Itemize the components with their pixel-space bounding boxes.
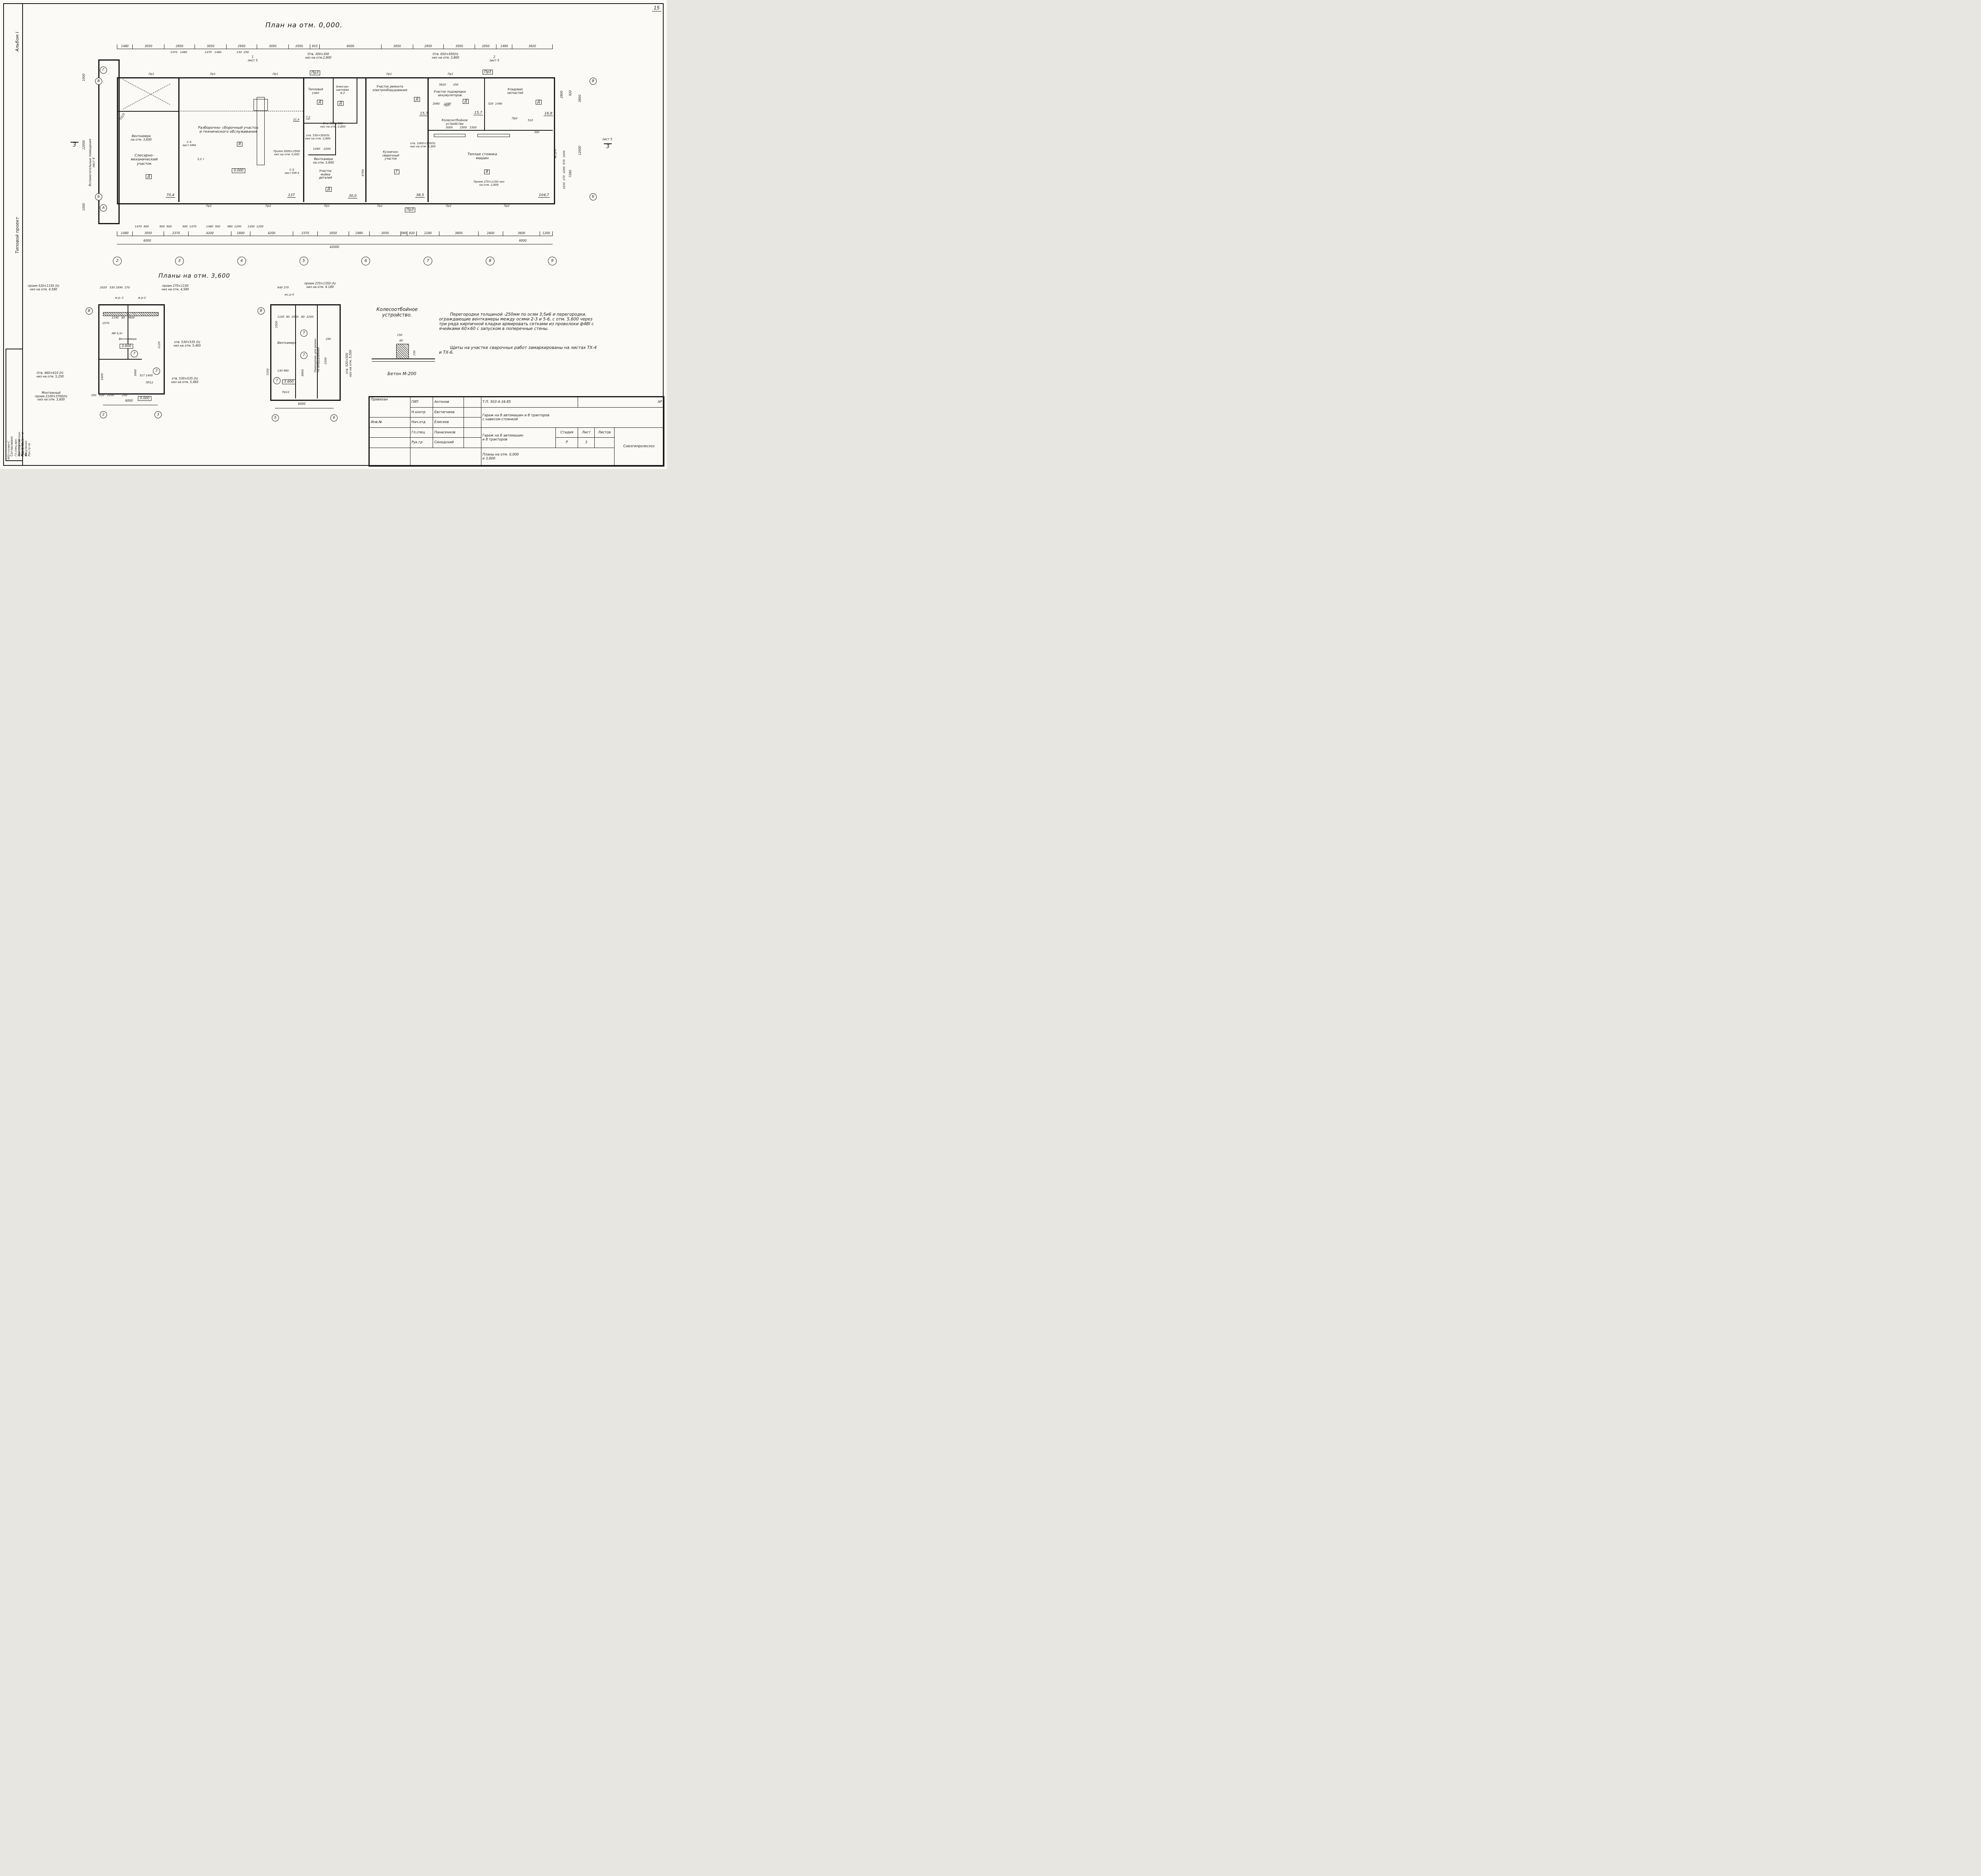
dim-value: 3800: [439, 231, 478, 236]
dim-value: 1200: [540, 231, 553, 236]
dim-value: 2050: [288, 44, 310, 49]
tb-role-2: Нач.отд: [410, 418, 433, 428]
p1-d6: 250 520 2100 250: [91, 394, 127, 397]
tb-name-1: Евстигнеев: [433, 407, 464, 418]
tb-empty-1: [370, 427, 410, 438]
tb-sig-0: [464, 397, 481, 408]
dim-total-right: 6000: [519, 239, 527, 243]
annex-outline: [98, 59, 120, 224]
dim-value: 920: [407, 231, 417, 236]
room-stoyanka-letter: В: [484, 170, 490, 174]
p2-elev: 3.600: [282, 379, 296, 384]
p1-pr12: ПР12: [146, 381, 153, 384]
dim-value: 4200: [188, 231, 231, 236]
p1-axis-left: В: [86, 307, 93, 315]
p2-axis2: 6: [330, 414, 338, 421]
mark-prii: ПрII: [512, 117, 517, 120]
tb-sheet: 3: [578, 438, 595, 448]
section-mark-1: 1 лист 5: [248, 55, 258, 62]
dim-value: 3600: [503, 231, 540, 236]
room-podzar-dims: 5620 250: [439, 83, 458, 86]
dim-value: 1480: [117, 44, 132, 49]
dim-right-3: 920: [569, 90, 573, 96]
tb-role-4: Рук.гр: [410, 438, 433, 448]
dim-bottom-pairs: 1470 900 900 900 900 1470 1480 500 980 1…: [135, 225, 263, 228]
mark-pr2-b: Пр2: [265, 204, 271, 208]
room-podzar: Участок подзарядки аккумуляторов: [434, 90, 466, 97]
partition-axis3: [178, 77, 179, 202]
detail-caption: Бетон М-200: [387, 372, 416, 377]
tb-title2: Гараж на 8 автомашин и 8 тракторов: [481, 427, 555, 448]
dim-value: 580: [401, 231, 407, 236]
room-moyka-area: 30,0: [348, 194, 357, 198]
dim-value: 2370: [293, 231, 317, 236]
room-kuzn-letter: Г: [394, 170, 399, 174]
dim-value: 2370: [164, 231, 188, 236]
tb-sig-2: [464, 418, 481, 428]
dim-value: 1490: [496, 44, 511, 49]
ann-proem270: Проем 270×1150 низ на отм. 2,600: [473, 180, 504, 187]
tb-name-0: Антонов: [433, 397, 464, 408]
dim-value: 2950: [226, 44, 257, 49]
room-kuzn-dim: 6700: [361, 169, 365, 176]
detail-d3: 150: [413, 351, 416, 356]
p2-d4: 6900: [301, 369, 304, 376]
dim-total: 42000: [330, 246, 339, 249]
room-razbor: Разборочно- сборочный участок и техничес…: [198, 126, 258, 134]
axis-left-V: В: [95, 78, 102, 85]
ann-otv530: отв. 530×500(h) низ на отм. 2,800: [305, 134, 330, 140]
mark-pr2-a: Пр2: [206, 204, 212, 208]
dim-right-1: 2800: [560, 91, 564, 98]
mark-prn: ПрН: [444, 104, 450, 107]
c5-km4b: С-5 лист КМ-4: [284, 168, 299, 175]
p2-ann-top: проем 270×1350 (h) низ на отм. 4.180: [304, 282, 336, 289]
agree-row-3: Рук.гр.техн. Вакуленко Рук.гр св: [21, 439, 31, 457]
p2-d3: 7250: [266, 368, 269, 376]
p1-axis9: 7: [131, 350, 138, 357]
tb-empty-4: [410, 448, 481, 465]
dim-value: 2050: [475, 44, 496, 49]
p2-d5: 2590: [324, 357, 327, 364]
dim-right-mid: 12000: [578, 146, 582, 155]
axis-bubble: 5: [300, 257, 308, 265]
p2-m1: жс.р-3: [284, 293, 294, 296]
dim-right-2: 3800: [578, 95, 582, 102]
dim-row-bottom: 1480305023704200180042002370305019803050…: [117, 231, 553, 236]
album-label: Альбом I: [15, 32, 20, 51]
dim-row-top: 1480305029503050295030502050910600030502…: [117, 44, 553, 49]
room-kuzn-area: 38,5: [415, 193, 425, 198]
room-klad-area: 16,8: [544, 112, 553, 116]
p1-partition: [128, 304, 128, 360]
p1-d4: 3060: [134, 369, 137, 376]
p2-dimline: [275, 408, 334, 408]
dim-value: 2950: [164, 44, 195, 49]
axis-bubble: 3: [175, 257, 184, 265]
p2-total: 6000: [298, 402, 305, 406]
p1-d7: 317 1400: [139, 374, 153, 377]
p1-ann-l2: Монтажный проем 2100×3700(h) низ на отм.…: [35, 391, 67, 402]
room-vent2: Венткамера на отм. 3,600: [313, 158, 334, 164]
dim-value: 2180: [416, 231, 439, 236]
partition-teplo-electro: [333, 77, 334, 123]
tb-sheets: [595, 438, 615, 448]
room-moyka: Участок мойки деталей: [319, 170, 332, 180]
dim-value: 910: [310, 44, 319, 49]
p1-dimline: [103, 405, 158, 405]
room-razbor-area: 137: [287, 193, 296, 198]
tb-sig-1: [464, 407, 481, 418]
main-plan-title: План на отм. 0,000.: [265, 22, 343, 30]
dim-left-bot: 1000: [82, 203, 86, 211]
partition-vent2: [308, 154, 336, 155]
p1-partition2: [98, 359, 142, 360]
mark-pr5: Пр5: [483, 70, 493, 74]
partition-axis6: [365, 77, 366, 202]
axis-left-G: Г: [100, 67, 107, 74]
title-block: Привязан ГИП Антонов Т.П. 503-4-34.85 АР…: [368, 396, 664, 467]
p1-elev0: 0.000: [138, 396, 151, 401]
p2-pr12: Пр12: [282, 391, 290, 394]
room-remont-letter: Д: [414, 97, 420, 102]
tb-name-4: Синодский: [433, 438, 464, 448]
room-vent1: Венткамера на отм. 3,600: [131, 135, 152, 141]
mark-pr1-a: Пр1: [149, 72, 154, 76]
p1-ann-r2: отв. 530×535 (h) низ на отм. 5,465: [171, 377, 198, 384]
room-podzar-area: 15,7: [473, 111, 483, 115]
annex-label: Вспомогательные помещения лист 4: [89, 139, 95, 186]
tb-stage: Р: [556, 438, 578, 448]
ann-proem3000: Проем 3000×2500 низ на отм. 0,000: [273, 150, 300, 156]
dim-value: 3050: [381, 44, 413, 49]
section-right-txt: лист 5: [602, 138, 612, 141]
room-stoyanka-area: 104,7: [538, 193, 550, 198]
axis-right-B: Б: [590, 193, 597, 200]
crane-capacity: 3,2 т: [197, 158, 204, 161]
tb-sheet-label: Лист: [578, 427, 595, 438]
axis-bubble: 9: [548, 257, 557, 265]
axis-right-V: В: [590, 78, 597, 85]
p2-axis9a: 7: [300, 330, 307, 337]
p2-room2: Помещение для ремон- та оборудования: [314, 338, 320, 372]
dim-value: 3050: [132, 44, 164, 49]
partition-axis7: [427, 77, 429, 202]
room-kuzn: Кузнечно- сварочный участок: [382, 151, 399, 161]
dim-left-mid: 12000: [82, 140, 86, 150]
p2-axis7: 7: [273, 377, 281, 384]
room-slesar-area: 70,4: [166, 193, 175, 198]
p1-m1: ж.р.-1: [115, 296, 124, 299]
dim-total-line: [117, 244, 553, 244]
room-slesar-letter: Д: [146, 174, 152, 179]
ann-otv500: Отв. 500×500 низ на отм. 2,800: [320, 122, 345, 128]
room-moyka-letter: Д: [326, 187, 332, 192]
room-klad-dims: 520 1490: [488, 102, 502, 105]
agree-label: Согласовано: [10, 437, 14, 456]
axis-bubble: 4: [237, 257, 246, 265]
dim-value: 3920: [512, 44, 553, 49]
room-teplo-letter: Д: [317, 100, 323, 105]
tb-empty-2: [370, 438, 410, 448]
axis-left-A: А: [100, 204, 107, 212]
tb-role-1: Н.контр: [410, 407, 433, 418]
drawing-sheet: 15 Альбом I Типовой проект 602-гссово-С …: [0, 0, 667, 469]
p2-d6: 130 960: [277, 369, 289, 372]
p1-ann-r1: отв. 530×535 (h) низ на отм. 5,465: [174, 341, 201, 347]
p2-axis1: 5: [272, 414, 279, 421]
notes-p2: Щиты на участке сварочных работ замаркир…: [439, 345, 597, 355]
sheet-number: 15: [652, 6, 661, 11]
p2-d1: 2500: [275, 321, 278, 328]
dim-510: 510: [528, 119, 533, 122]
tb-role-0: ГИП: [410, 397, 433, 408]
room-remont-area: 15,7: [419, 112, 429, 116]
wheel-stop-label: Колесоотбойное устройство: [442, 119, 468, 126]
section-mark-2: 2 лист 5: [489, 55, 499, 62]
dim-value: 3050: [317, 231, 349, 236]
wheel-stop-bar-1: [434, 134, 466, 137]
p1-ann-l1: Отв. 660×610 (h) низ на отм. 5,250: [36, 372, 64, 378]
stoyanka-dims: 3000 2500 1500: [446, 126, 477, 129]
room-klad-letter: Д: [536, 100, 542, 105]
dim-value: 3050: [132, 231, 164, 236]
axis-bubble: 7: [424, 257, 432, 265]
room-electro-area: 21,4: [293, 118, 300, 122]
c5-km4: С-5 лист КМ4: [182, 141, 196, 147]
p1-d3: 5400: [101, 373, 104, 380]
mark-pr1-b: Пр1: [210, 72, 216, 76]
pit-head: [254, 99, 268, 111]
p2-d2: 1100 80 2540 80 2200: [277, 315, 313, 318]
mark-pr1-d: Пр1: [386, 72, 392, 76]
dim-value: 6000: [319, 44, 381, 49]
ann-otv1000: отв. 1000×500(h) низ на отм. 3,300: [410, 142, 435, 148]
project-type-label: Типовой проект: [15, 217, 20, 254]
notes-p1: Перегородки толщиной -250мм по осям 3;5и…: [439, 312, 597, 331]
section-right: 3: [604, 143, 612, 150]
dim-value: 2950: [413, 44, 443, 49]
room-klad: Кладовая запчастей: [507, 88, 523, 95]
agree-table: Согласовано Гл.спец.арх. Екатеринов Рук.…: [6, 349, 23, 461]
mark-pr1-c: Пр1: [273, 72, 278, 76]
p1-d2: 1190 80 2600: [112, 316, 135, 319]
room-electro-letter: Д: [338, 101, 344, 106]
mark-pr2-c: Пр2: [446, 204, 451, 208]
tb-mark: АР: [578, 397, 664, 408]
detail-block: [396, 344, 409, 359]
section-left: 3: [71, 142, 78, 149]
detail-base2: [372, 361, 435, 362]
dim-top-sub: 1470 1480 1470 1480 130 250: [170, 51, 249, 54]
p1-dims-top: 2020 530 1690 270: [100, 286, 130, 289]
p2-room: Венткамера: [277, 341, 296, 345]
axis-bubble: 2: [113, 257, 122, 265]
p1-ann-topleft: проем 530×1150 (h) низ на отм. 4,580: [28, 284, 59, 291]
dim-total-left: 6000: [143, 239, 151, 243]
tb-sig-4: [464, 438, 481, 448]
dim-value: 1980: [349, 231, 369, 236]
mark-pr1-e: Пр1: [448, 72, 453, 76]
detail-title: Колесоотбойное устройство.: [376, 307, 418, 318]
partition-axis5: [303, 77, 304, 202]
tb-attach: Привязан: [370, 397, 410, 418]
dim-value: 1480: [117, 231, 132, 236]
dim-value: 4200: [250, 231, 293, 236]
tb-doc: Т.П. 503-4-34.85: [481, 397, 578, 408]
room-podzar-letter: Д: [463, 99, 469, 104]
dim-value: 3050: [369, 231, 401, 236]
detail-d2: 80: [399, 339, 403, 342]
p1-d1: 1570: [102, 322, 109, 325]
dim-value: 3050: [195, 44, 226, 49]
mark-pr1-f: Пр1: [324, 204, 330, 208]
tb-role-3: Гл.спец: [410, 427, 433, 438]
ann-otv650: Отв. 650×450(h) низ на отм. 3,800: [432, 53, 459, 59]
elev-0000: 0.000: [232, 168, 245, 173]
p1-elev: 3.600: [120, 344, 133, 349]
mark-zhr2: жс.р-2: [554, 149, 557, 158]
p1-hatch-wall: [103, 312, 158, 316]
dim-value: 3050: [257, 44, 288, 49]
tb-sig-3: [464, 427, 481, 438]
p1-axis2: 3: [155, 411, 162, 418]
p1-axis7: 7: [153, 368, 160, 375]
p2-dims-top: 640 270: [277, 286, 289, 289]
dim-value: 2400: [478, 231, 503, 236]
dim-left-top: 1000: [82, 74, 86, 81]
tb-name-2: Елисеев: [433, 418, 464, 428]
p1-m2: ж.р-2: [138, 296, 146, 299]
wheel-stop-bar-2: [477, 134, 510, 137]
dim-value: 1800: [231, 231, 250, 236]
tb-sheets-label: Листов: [595, 427, 615, 438]
dim-390: 390: [534, 131, 539, 134]
p1-room: Венткамера: [119, 337, 137, 341]
dim-right-inner: 1630 270 2200 970 1630: [563, 151, 566, 189]
p2-axis-left: В: [258, 307, 265, 315]
plans36-title: Планы на отм. 3,600: [158, 273, 230, 279]
crane-rail-dashed: [119, 111, 303, 111]
mark-pr1-g: Пр1: [377, 204, 383, 208]
room-razbor-letter: В: [237, 142, 242, 147]
room-slesar: Слесарно- механический участок: [131, 154, 158, 166]
axis-left-B: Б: [95, 193, 102, 200]
room-vent2-dims: 1490 2200: [313, 147, 331, 151]
tb-stage-label: Стадия: [556, 427, 578, 438]
mark-pr3-bot: Пр3: [405, 208, 415, 212]
p1-mr: МР 0,5т: [112, 332, 123, 335]
axis-bubble: 6: [361, 257, 370, 265]
dim-value: 3050: [443, 44, 475, 49]
tb-empty-3: [370, 448, 410, 465]
p2-axis9b: 7: [300, 352, 307, 359]
p1-axis1: 2: [100, 411, 107, 418]
tb-org: Союзгипролесхоз: [615, 427, 664, 465]
mark-pr2-d: Пр2: [504, 204, 510, 208]
partition-electro-end: [357, 77, 357, 123]
room-teplo: Тепловой узел: [308, 88, 323, 95]
p1-total: 6000: [125, 399, 133, 403]
p1-ann-topright: проем 270×1150 низ на отм. 4,580: [162, 284, 189, 291]
p1-d5: 2120: [158, 341, 161, 349]
tb-inv: Инв.№: [370, 418, 410, 428]
mark-pr3-top: Пр3: [310, 71, 320, 75]
room-electro: Электро- щитовая 8,3: [336, 85, 349, 95]
room-teplo-area: 7,2: [306, 116, 310, 119]
tb-name-3: Панасенков: [433, 427, 464, 438]
axis-row-bottom: 23456789: [113, 257, 557, 265]
room-remont: Участок ремонта электрооборудования: [372, 85, 407, 92]
room-stoyanka: Теплая стоянка машин: [468, 153, 497, 161]
detail-d1: 150: [397, 334, 402, 337]
dim-right-4: 7280: [569, 170, 573, 177]
p2-ann-r: отв. 520×500 низ на отм. 5,500: [345, 350, 352, 377]
tb-title1: Гараж на 8 автомашин и 8 тракторов с нав…: [481, 407, 663, 427]
axis-bubble: 8: [486, 257, 494, 265]
p2-d7: 250: [326, 337, 331, 341]
ann-otv300: Отв. 300×300 низ на отм.2,800: [305, 53, 332, 59]
partition-podzar-klad: [484, 77, 485, 131]
tb-subtitle: Планы на отм. 0,000 и 3,600: [481, 448, 614, 465]
